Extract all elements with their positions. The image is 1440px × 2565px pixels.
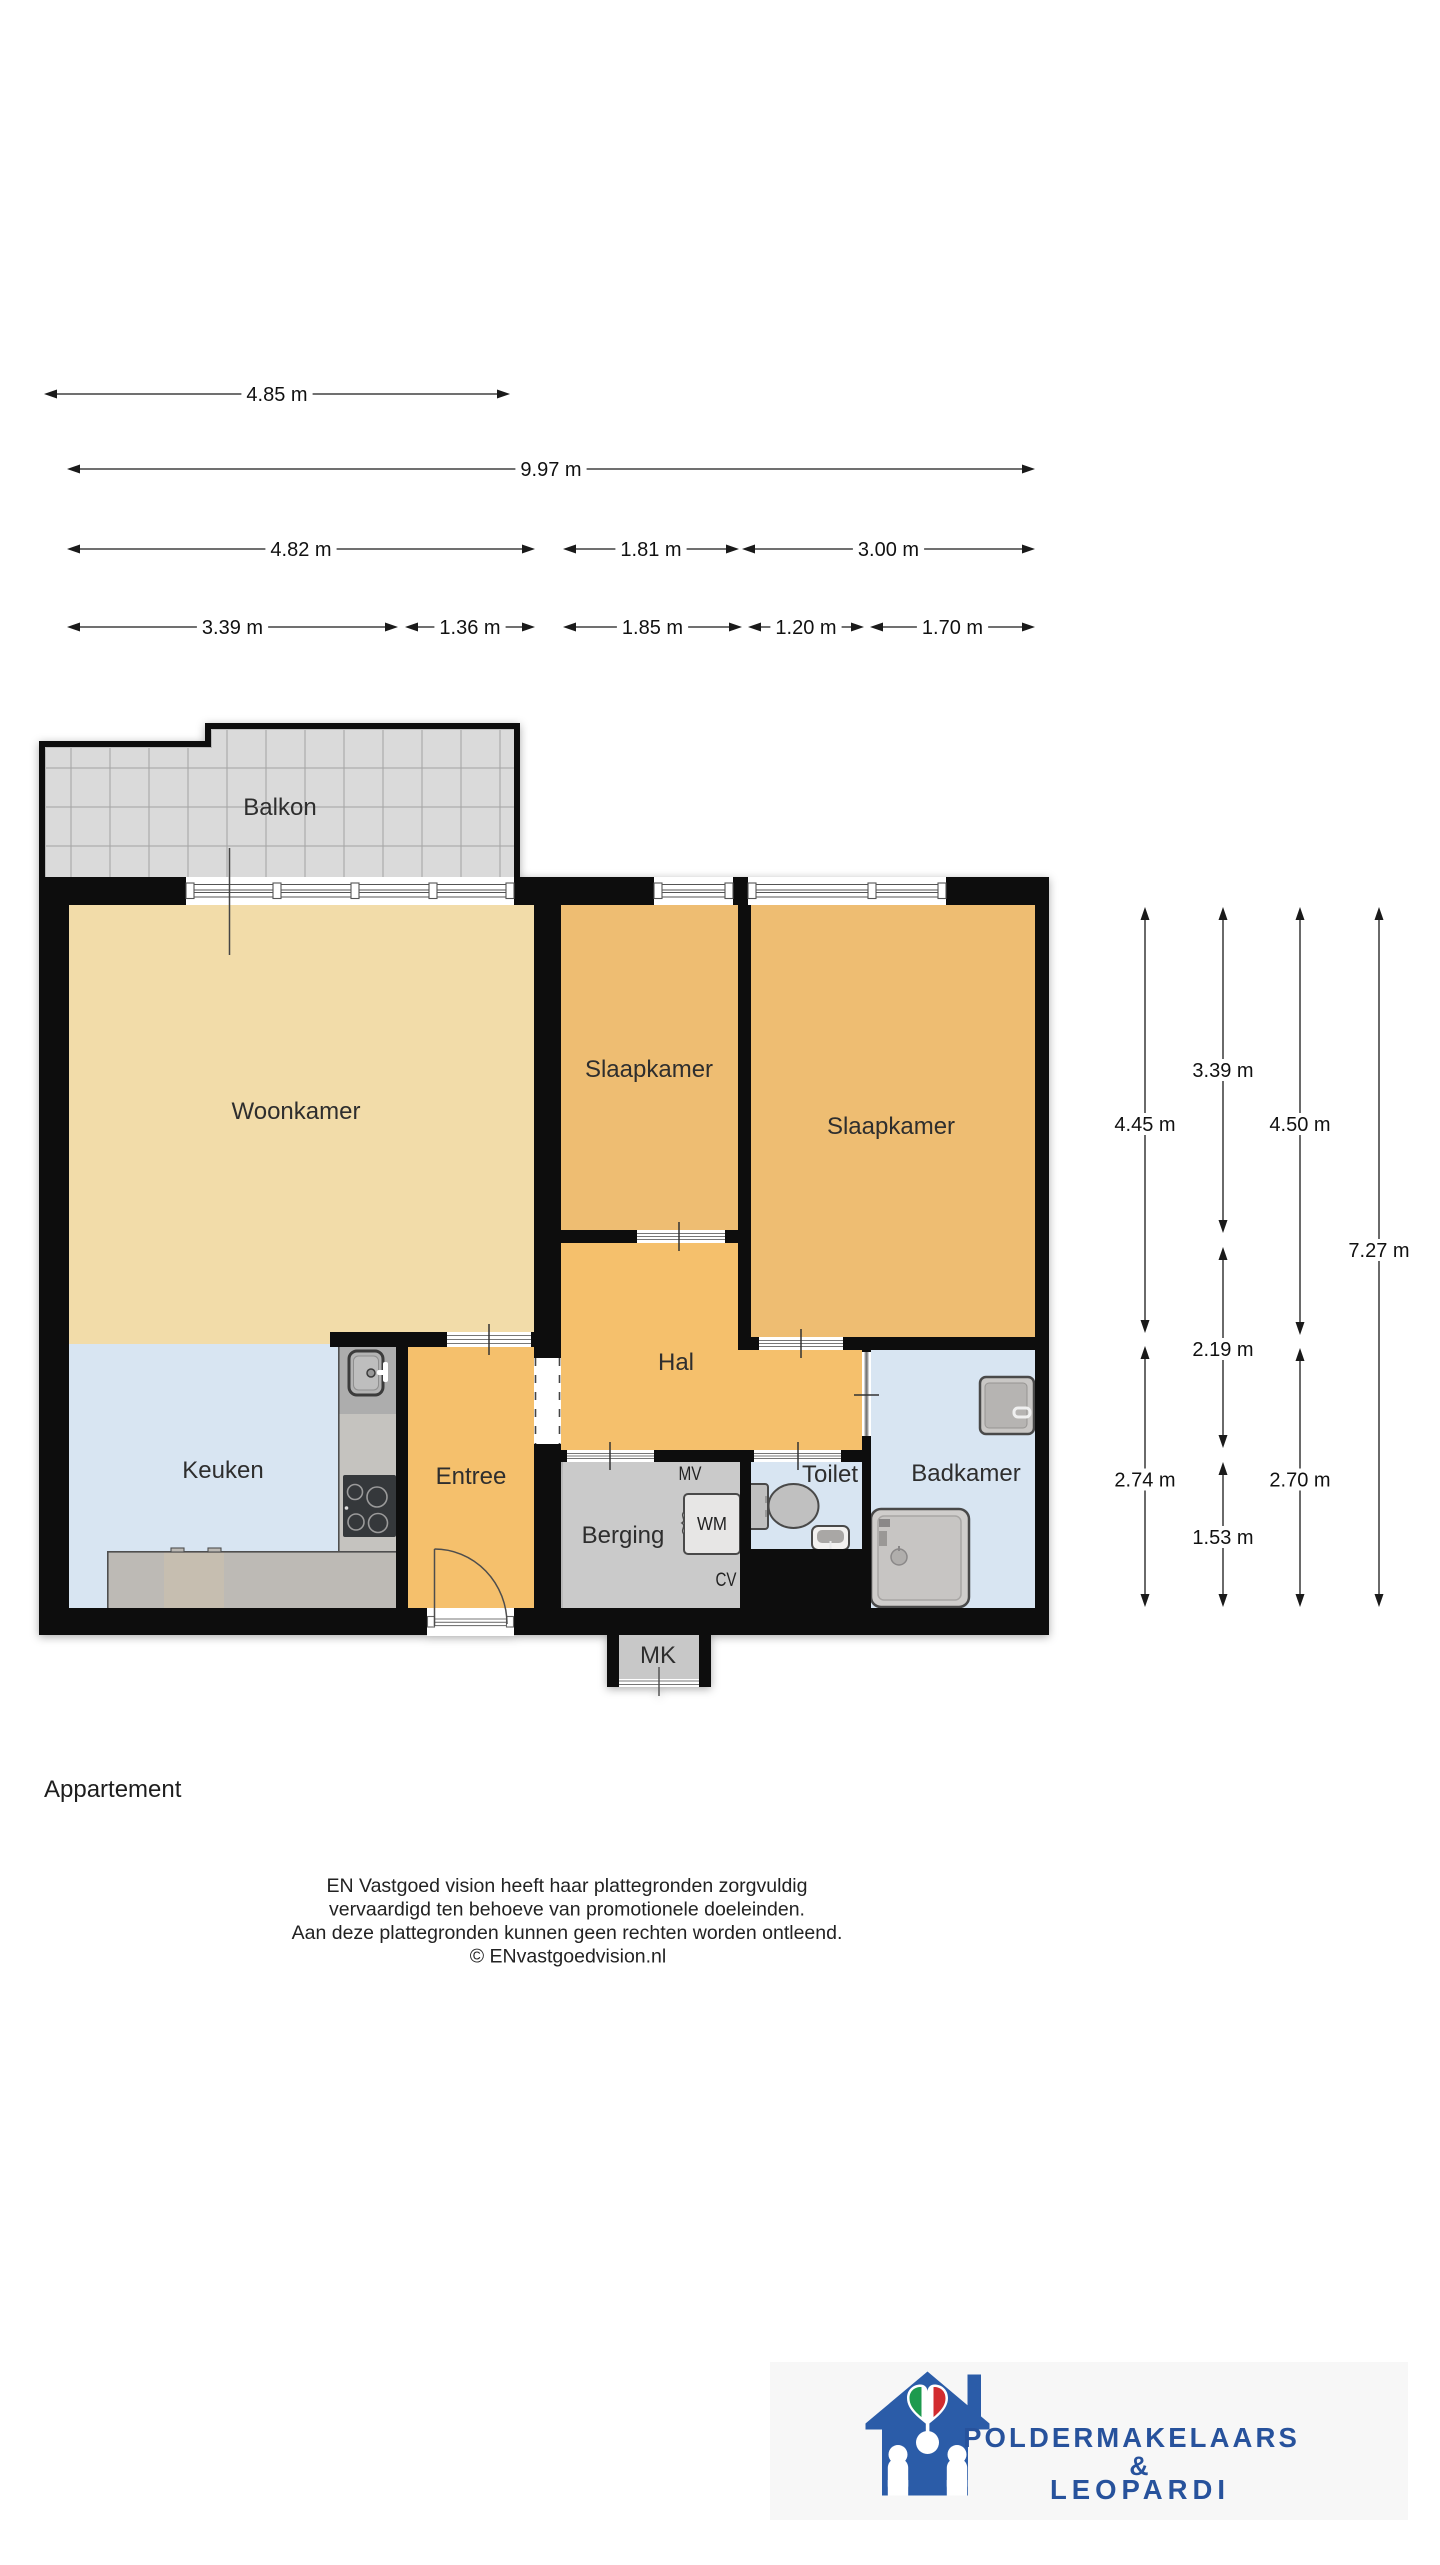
svg-text:1.20 m: 1.20 m bbox=[775, 617, 836, 639]
svg-text:3.39 m: 3.39 m bbox=[202, 617, 263, 639]
svg-text:9.97 m: 9.97 m bbox=[520, 459, 581, 481]
svg-text:WM: WM bbox=[697, 1513, 727, 1534]
svg-text:Slaapkamer: Slaapkamer bbox=[827, 1113, 955, 1140]
svg-text:Slaapkamer: Slaapkamer bbox=[585, 1056, 713, 1083]
svg-text:MK: MK bbox=[640, 1642, 676, 1669]
svg-text:4.85 m: 4.85 m bbox=[246, 384, 307, 406]
svg-text:1.81 m: 1.81 m bbox=[620, 539, 681, 561]
svg-text:EN Vastgoed vision heeft haar: EN Vastgoed vision heeft haar plattegron… bbox=[327, 1875, 808, 1897]
svg-text:CV: CV bbox=[716, 1570, 737, 1591]
svg-text:3.00 m: 3.00 m bbox=[858, 539, 919, 561]
svg-text:7.27 m: 7.27 m bbox=[1348, 1240, 1409, 1262]
svg-text:4.45 m: 4.45 m bbox=[1114, 1114, 1175, 1136]
svg-text:1.70 m: 1.70 m bbox=[922, 617, 983, 639]
svg-text:2.70 m: 2.70 m bbox=[1269, 1470, 1330, 1492]
svg-text:Aan deze plattegronden kunnen: Aan deze plattegronden kunnen geen recht… bbox=[292, 1922, 843, 1944]
svg-text:1.85 m: 1.85 m bbox=[622, 617, 683, 639]
svg-text:4.50 m: 4.50 m bbox=[1269, 1114, 1330, 1136]
svg-text:Appartement: Appartement bbox=[44, 1776, 182, 1803]
svg-text:Entree: Entree bbox=[436, 1463, 507, 1490]
svg-text:1.36 m: 1.36 m bbox=[439, 617, 500, 639]
svg-text:Hal: Hal bbox=[658, 1349, 694, 1376]
svg-text:3.39 m: 3.39 m bbox=[1192, 1060, 1253, 1082]
svg-text:Berging: Berging bbox=[582, 1522, 665, 1549]
svg-text:2.19 m: 2.19 m bbox=[1192, 1339, 1253, 1361]
svg-text:Keuken: Keuken bbox=[182, 1457, 263, 1484]
svg-text:1.53 m: 1.53 m bbox=[1192, 1527, 1253, 1549]
svg-text:2.74 m: 2.74 m bbox=[1114, 1470, 1175, 1492]
svg-text:Badkamer: Badkamer bbox=[911, 1460, 1020, 1487]
svg-text:Toilet: Toilet bbox=[802, 1461, 858, 1488]
svg-text:© ENvastgoedvision.nl: © ENvastgoedvision.nl bbox=[470, 1946, 666, 1968]
svg-text:LEOPARDI: LEOPARDI bbox=[1050, 2474, 1230, 2505]
svg-text:Balkon: Balkon bbox=[243, 794, 316, 821]
svg-text:MV: MV bbox=[679, 1464, 702, 1485]
svg-text:Woonkamer: Woonkamer bbox=[232, 1098, 361, 1125]
svg-text:4.82 m: 4.82 m bbox=[270, 539, 331, 561]
svg-text:POLDERMAKELAARS: POLDERMAKELAARS bbox=[963, 2422, 1300, 2453]
svg-text:vervaardigd ten behoeve van pr: vervaardigd ten behoeve van promotionele… bbox=[329, 1899, 805, 1921]
